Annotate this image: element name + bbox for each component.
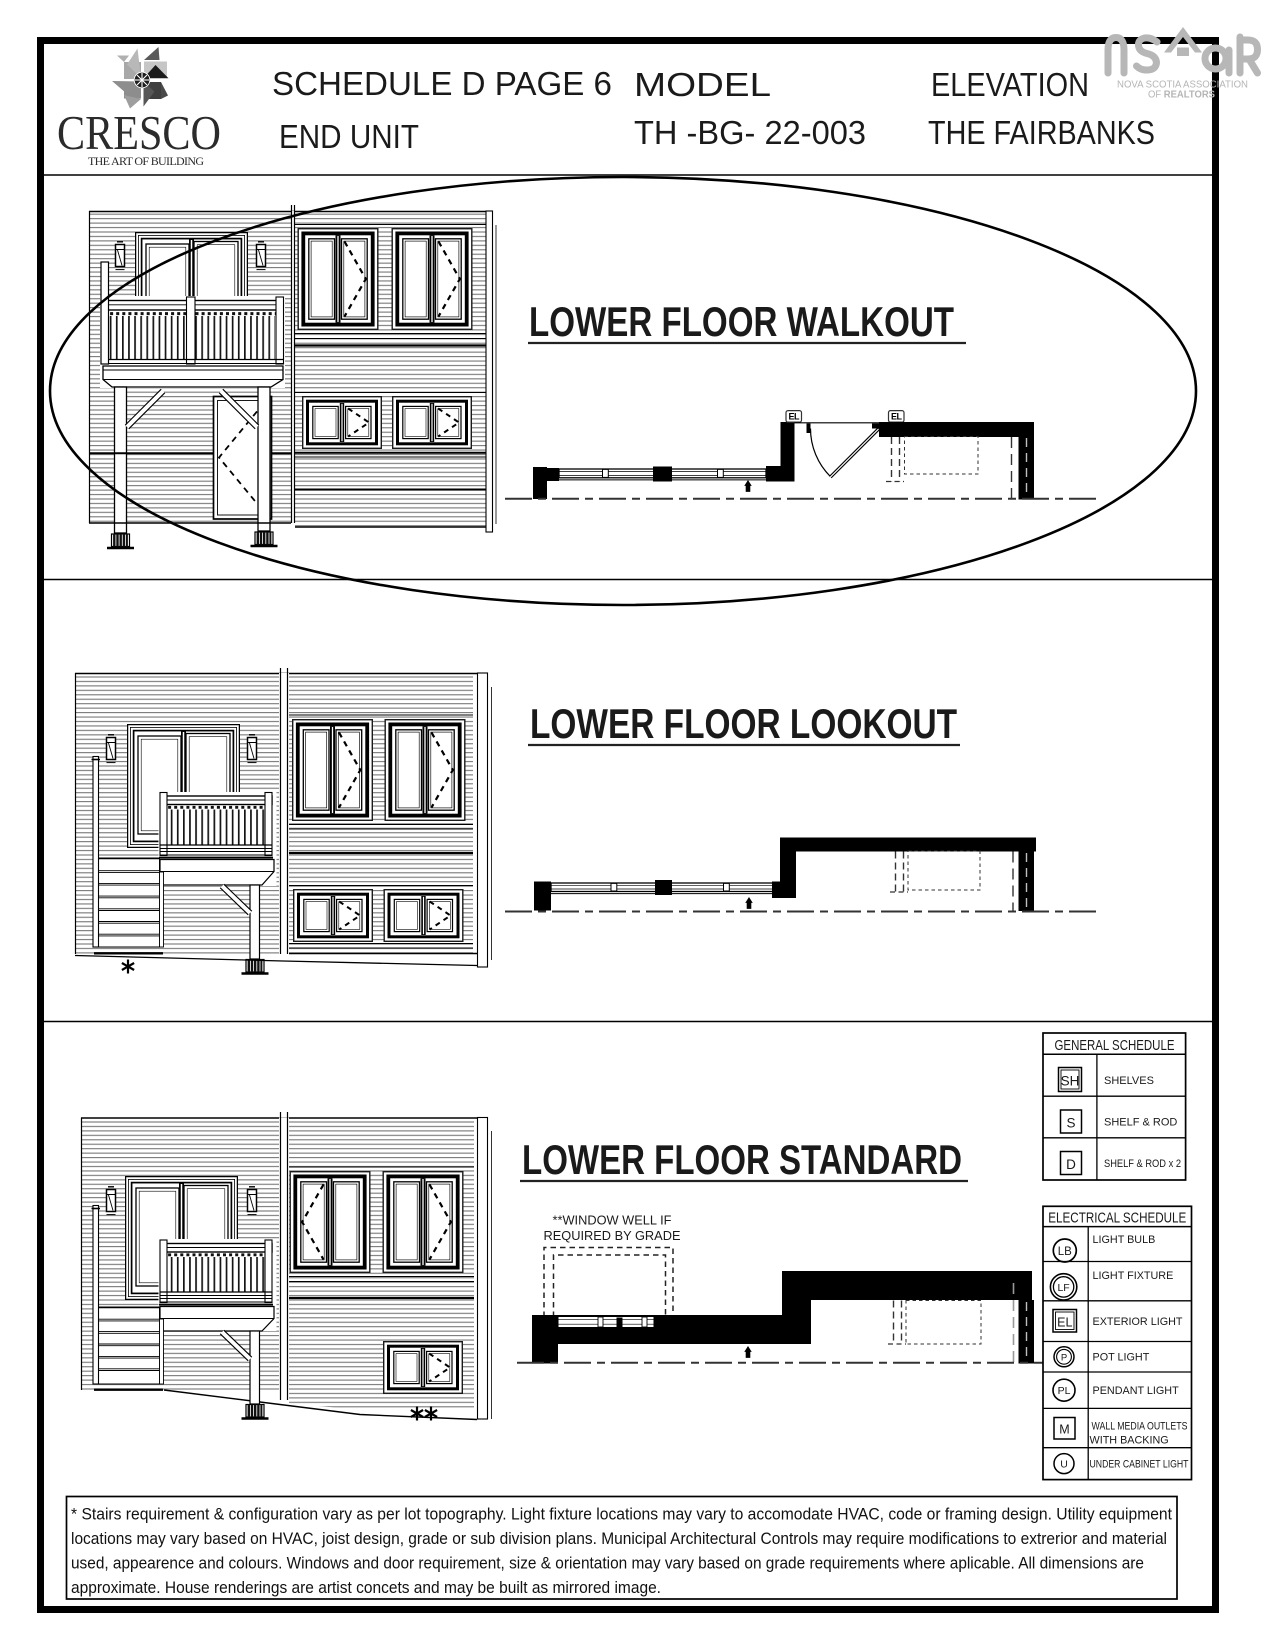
svg-text:* Stairs requirement & configu: * Stairs requirement & configuration var…: [71, 1505, 1172, 1524]
svg-text:POT LIGHT: POT LIGHT: [1093, 1352, 1150, 1364]
svg-text:UNDER CABINET LIGHT: UNDER CABINET LIGHT: [1090, 1459, 1189, 1471]
svg-text:SCHEDULE D PAGE 6: SCHEDULE D PAGE 6: [272, 66, 612, 103]
svg-text:SHELF & ROD: SHELF & ROD: [1104, 1117, 1177, 1129]
svg-text:LOWER FLOOR STANDARD: LOWER FLOOR STANDARD: [522, 1136, 962, 1183]
svg-text:PENDANT LIGHT: PENDANT LIGHT: [1093, 1385, 1180, 1397]
svg-text:used, appearence and colours.: used, appearence and colours. Windows an…: [71, 1554, 1144, 1573]
svg-text:approximate. House renderings: approximate. House renderings are artist…: [71, 1578, 661, 1597]
svg-text:TH -BG- 22-003: TH -BG- 22-003: [634, 115, 866, 152]
svg-text:ELECTRICAL SCHEDULE: ELECTRICAL SCHEDULE: [1048, 1210, 1186, 1226]
svg-text:LOWER FLOOR WALKOUT: LOWER FLOOR WALKOUT: [529, 298, 954, 345]
svg-text:P: P: [1061, 1353, 1067, 1364]
svg-text:SHELF & ROD x 2: SHELF & ROD x 2: [1104, 1158, 1181, 1170]
svg-text:LIGHT FIXTURE: LIGHT FIXTURE: [1093, 1270, 1174, 1282]
svg-text:EXTERIOR LIGHT: EXTERIOR LIGHT: [1093, 1316, 1183, 1328]
svg-text:THE ART OF BUILDING: THE ART OF BUILDING: [88, 154, 206, 168]
svg-text:WITH BACKING: WITH BACKING: [1090, 1435, 1169, 1447]
svg-text:GENERAL SCHEDULE: GENERAL SCHEDULE: [1055, 1038, 1175, 1054]
svg-text:M: M: [1059, 1423, 1069, 1437]
svg-text:U: U: [1060, 1459, 1068, 1471]
svg-text:SHELVES: SHELVES: [1104, 1075, 1154, 1087]
svg-text:CRESCO: CRESCO: [57, 105, 221, 160]
svg-text:REQUIRED BY GRADE: REQUIRED BY GRADE: [543, 1228, 680, 1243]
svg-text:LB: LB: [1058, 1246, 1072, 1258]
svg-text:THE FAIRBANKS: THE FAIRBANKS: [928, 115, 1155, 152]
svg-text:WALL MEDIA OUTLETS: WALL MEDIA OUTLETS: [1092, 1421, 1188, 1433]
svg-text:PL: PL: [1058, 1385, 1071, 1397]
svg-text:LOWER FLOOR LOOKOUT: LOWER FLOOR LOOKOUT: [530, 700, 957, 747]
svg-text:S: S: [1066, 1116, 1075, 1131]
svg-text:LF: LF: [1057, 1282, 1069, 1294]
svg-text:D: D: [1066, 1157, 1076, 1172]
svg-text:ELEVATION: ELEVATION: [931, 67, 1089, 104]
svg-text:locations may vary based on HV: locations may vary based on HVAC, joist …: [71, 1529, 1167, 1548]
svg-text:END UNIT: END UNIT: [279, 119, 419, 156]
svg-text:MODEL: MODEL: [634, 67, 771, 104]
svg-text:EL: EL: [1057, 1316, 1072, 1330]
svg-text:LIGHT BULB: LIGHT BULB: [1093, 1234, 1156, 1246]
svg-text:SH: SH: [1061, 1074, 1080, 1089]
svg-text:OF REALTORS: OF REALTORS: [1148, 90, 1215, 101]
svg-text:**WINDOW WELL IF: **WINDOW WELL IF: [553, 1213, 672, 1228]
